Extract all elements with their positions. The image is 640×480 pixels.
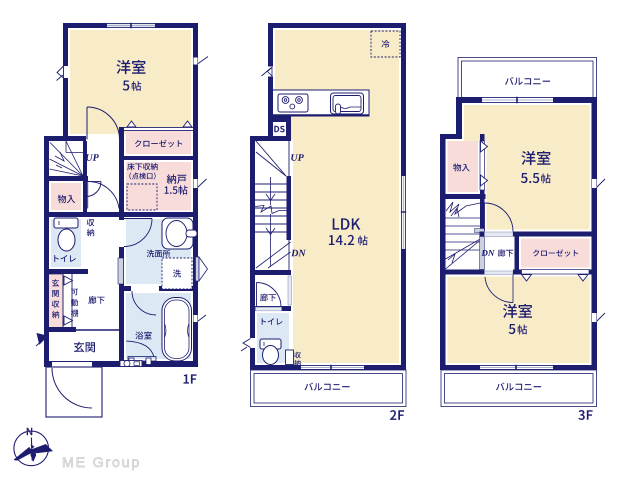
svg-text:ME Group: ME Group [62, 455, 141, 471]
